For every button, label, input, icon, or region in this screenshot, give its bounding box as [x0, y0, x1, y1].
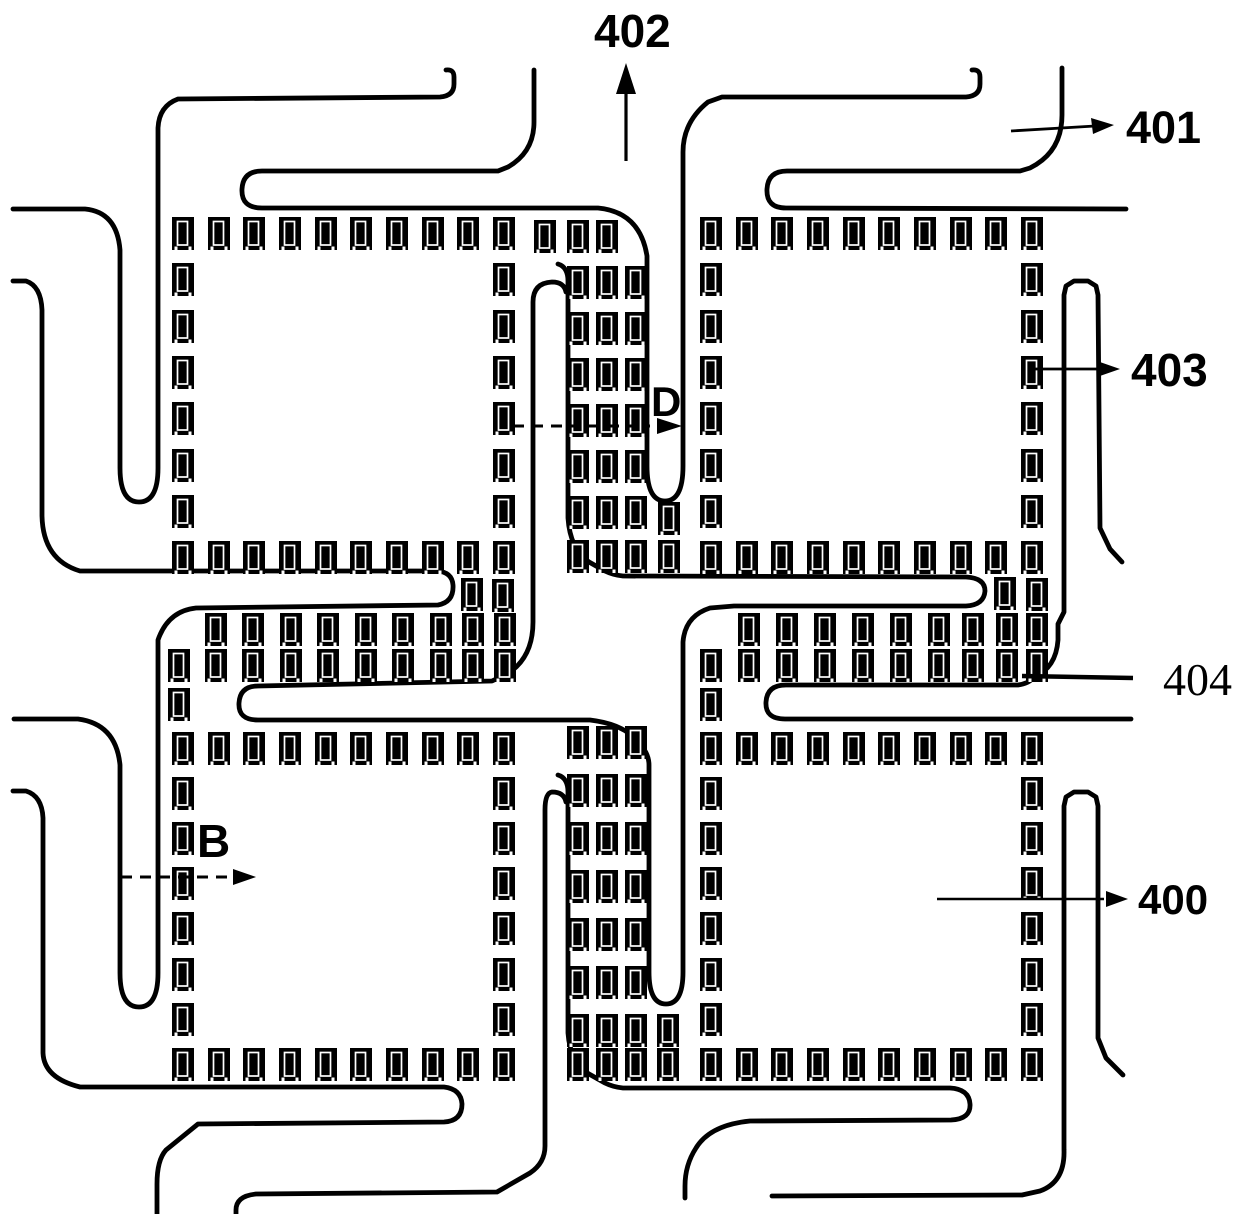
svg-text:B: B [197, 815, 230, 867]
svg-text:400: 400 [1138, 876, 1208, 923]
svg-text:403: 403 [1131, 344, 1208, 396]
svg-text:401: 401 [1126, 102, 1201, 153]
svg-text:402: 402 [594, 5, 671, 57]
svg-text:D: D [651, 378, 681, 425]
svg-text:404: 404 [1163, 654, 1232, 705]
